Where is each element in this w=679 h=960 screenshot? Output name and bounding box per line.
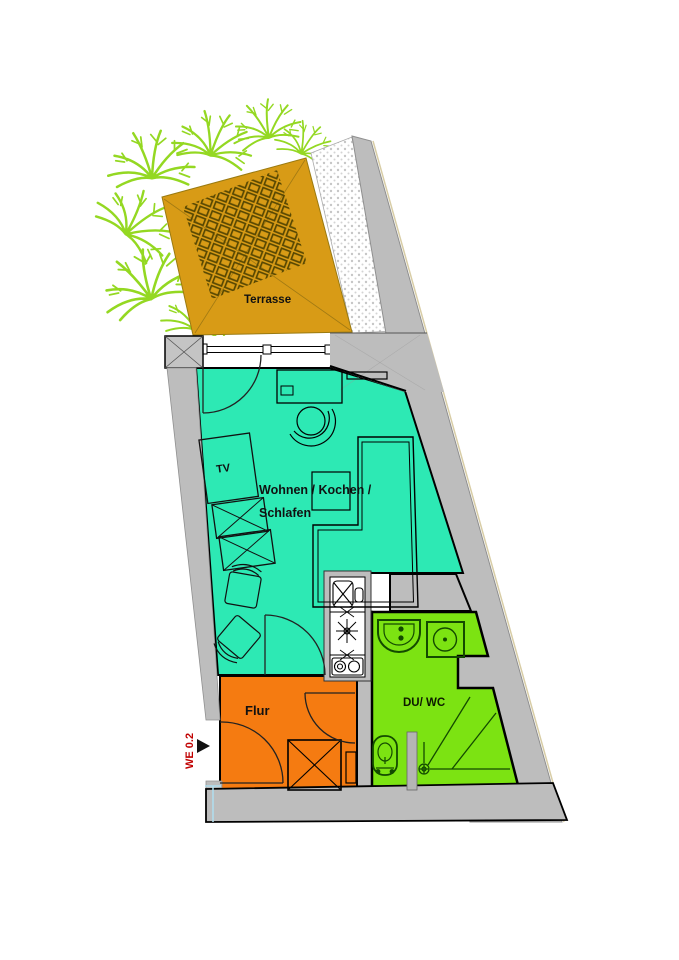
duct-shaft (390, 574, 471, 611)
bathroom-label: DU/ WC (403, 697, 445, 709)
living-room-label: Wohnen / Kochen / (259, 483, 372, 497)
floor-plan-svg: Terrasse (0, 0, 679, 960)
window-mullion (263, 345, 271, 354)
kitchen-hob-icon (336, 619, 358, 643)
bottom-wall (205, 783, 567, 822)
unit-arrow-icon (197, 739, 210, 753)
floor-plan-page: Terrasse (0, 0, 679, 960)
unit-marker: WE 0.2 (184, 733, 210, 769)
shower-partition-wall (407, 732, 417, 790)
unit-label: WE 0.2 (184, 733, 196, 769)
hall-label: Flur (245, 703, 270, 718)
living-room-label-line2: Schlafen (259, 506, 311, 520)
tv-label: TV (215, 462, 231, 476)
terrace-label: Terrasse (244, 294, 291, 306)
kitchenette (324, 571, 371, 681)
